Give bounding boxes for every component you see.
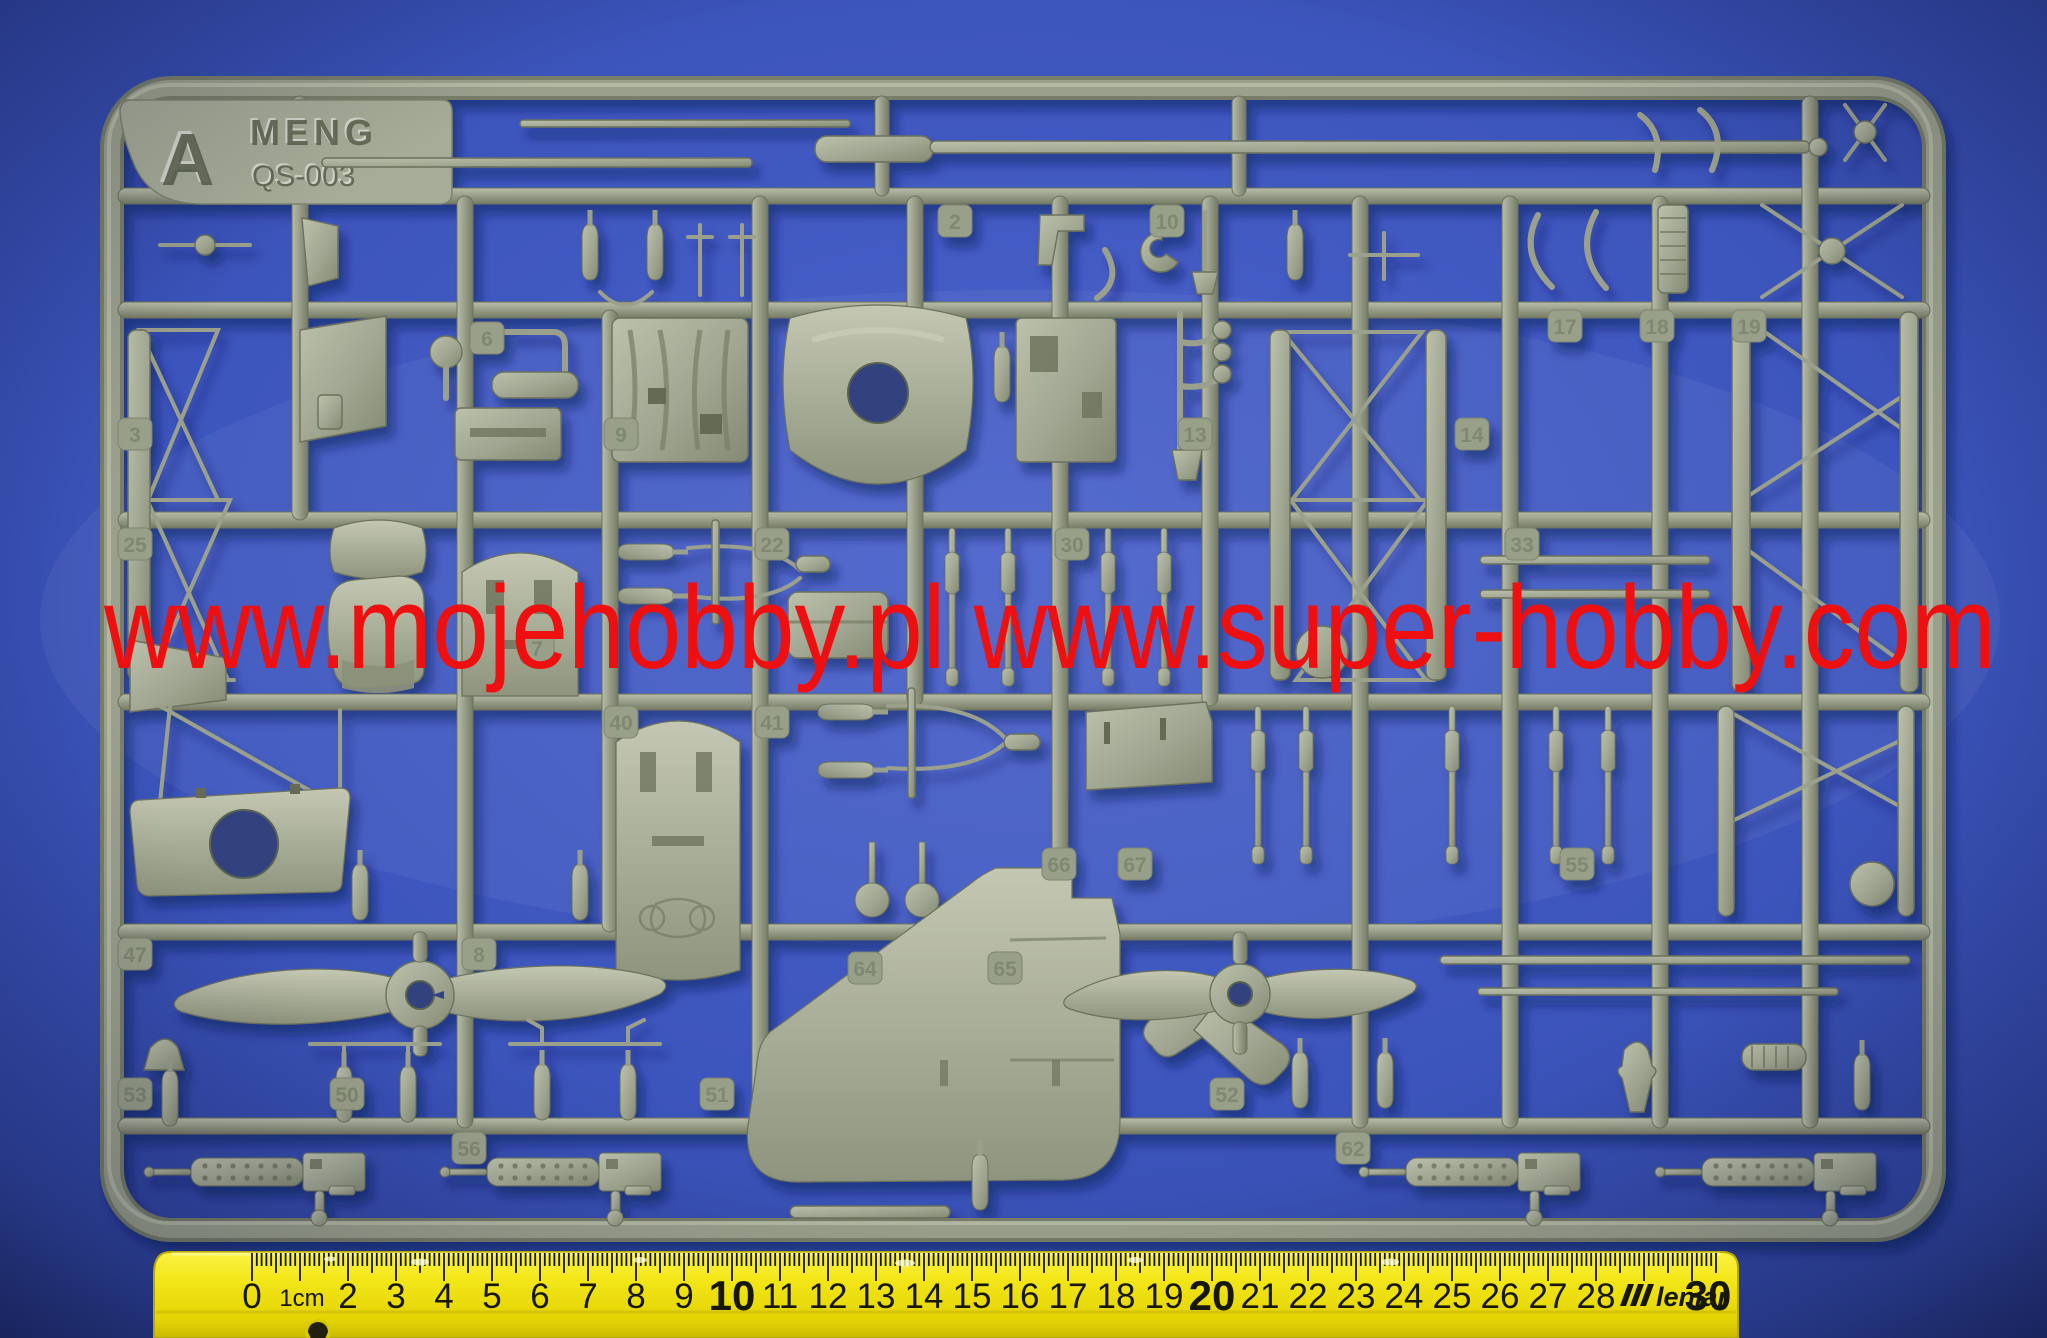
svg-text:13: 13 — [857, 1277, 896, 1316]
svg-text:24: 24 — [1385, 1277, 1424, 1316]
svg-text:27: 27 — [1529, 1277, 1568, 1316]
svg-text:25: 25 — [1433, 1277, 1472, 1316]
svg-text:19: 19 — [1145, 1277, 1184, 1316]
svg-text:12: 12 — [809, 1277, 848, 1316]
svg-text:28: 28 — [1577, 1277, 1616, 1316]
svg-text:18: 18 — [1097, 1277, 1136, 1316]
svg-text:9: 9 — [674, 1277, 693, 1316]
svg-text:4: 4 — [434, 1277, 453, 1316]
svg-text:14: 14 — [905, 1277, 944, 1316]
svg-text:15: 15 — [953, 1277, 992, 1316]
svg-text:20: 20 — [1189, 1272, 1236, 1319]
svg-text:16: 16 — [1001, 1277, 1040, 1316]
svg-text:0: 0 — [242, 1277, 261, 1316]
photo-canvas: A A MENG MENG QS-003 QS-003 — [0, 0, 2047, 1338]
svg-text:17: 17 — [1049, 1277, 1088, 1316]
svg-text:1cm: 1cm — [279, 1285, 324, 1312]
svg-text:8: 8 — [626, 1277, 645, 1316]
svg-text:26: 26 — [1481, 1277, 1520, 1316]
svg-text:3: 3 — [386, 1277, 405, 1316]
svg-text:10: 10 — [709, 1272, 756, 1319]
svg-text:2: 2 — [338, 1277, 357, 1316]
svg-text:23: 23 — [1337, 1277, 1376, 1316]
svg-text:7: 7 — [578, 1277, 597, 1316]
watermark-text: www.mojehobby.pl www.super-hobby.com — [103, 562, 1996, 694]
svg-text:11: 11 — [762, 1277, 798, 1316]
product-photo: A A MENG MENG QS-003 QS-003 — [0, 0, 2047, 1338]
svg-text:22: 22 — [1289, 1277, 1328, 1316]
svg-text:5: 5 — [482, 1277, 501, 1316]
svg-text:6: 6 — [530, 1277, 549, 1316]
ruler: 0 1cm 2 3 4 5 6 7 8 9 10 11 12 13 14 15 … — [154, 1252, 1738, 1338]
svg-text:21: 21 — [1241, 1277, 1280, 1316]
ruler-brand-name: leniar — [1656, 1282, 1730, 1312]
